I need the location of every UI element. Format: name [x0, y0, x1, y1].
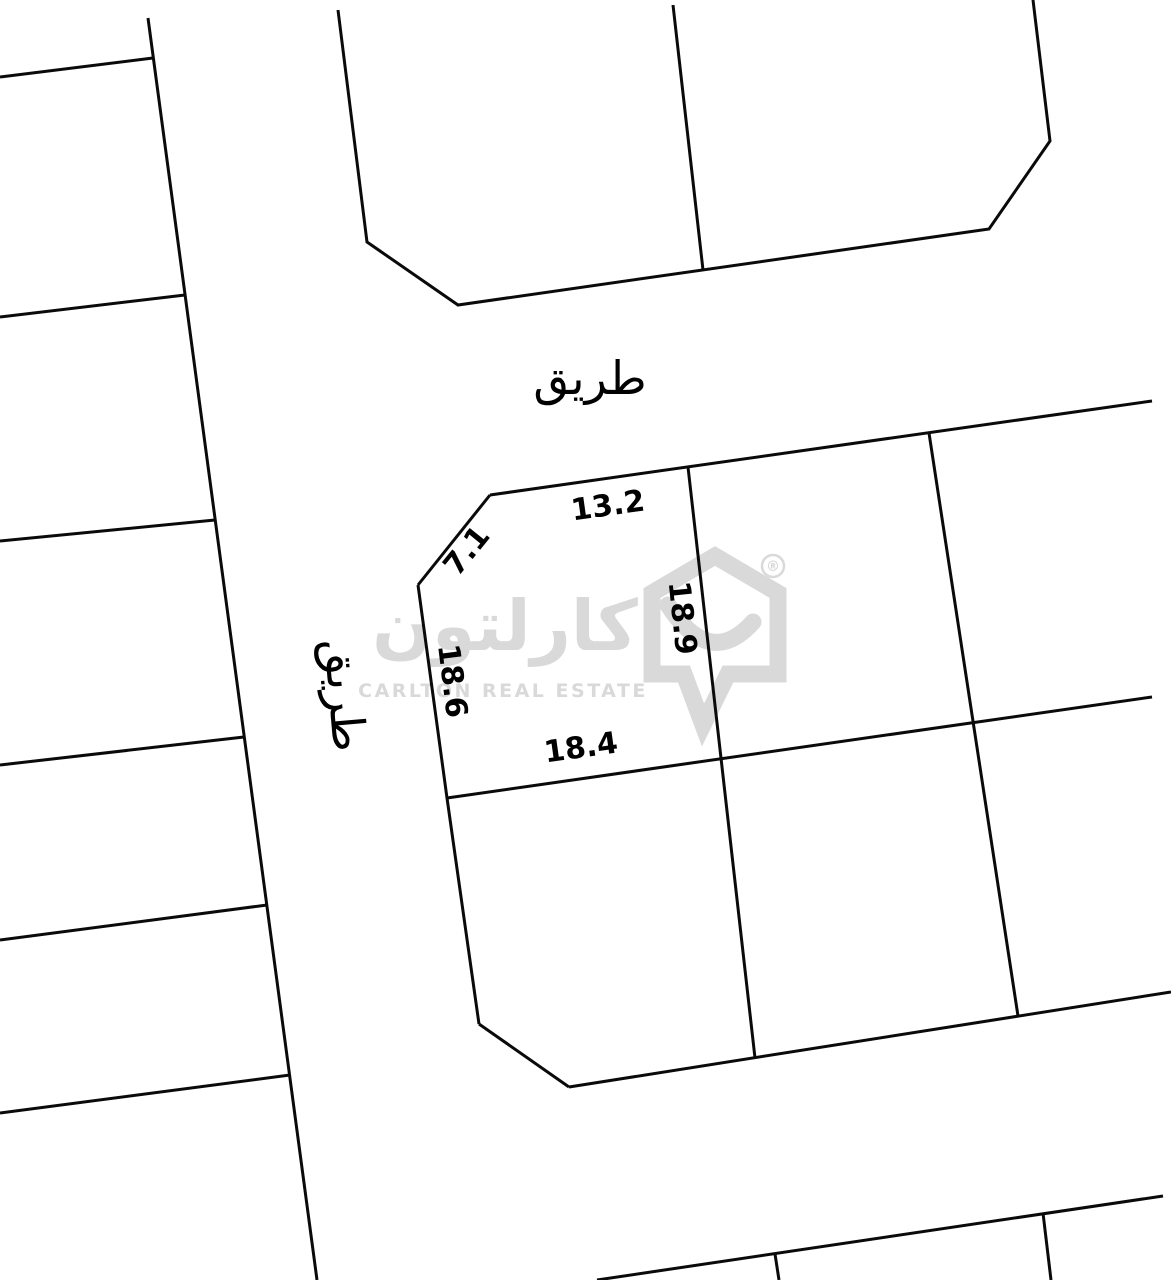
dimension-bottom: 18.4: [542, 726, 620, 771]
middle-block-south-boundary: [569, 992, 1171, 1087]
west-plot-division-2: [0, 295, 185, 317]
watermark-arabic-wordmark: كارلتون: [372, 585, 638, 667]
west-plot-division-1: [0, 58, 153, 77]
dimension-right: 18.9: [661, 579, 704, 656]
north-plot-division: [673, 5, 703, 270]
west-plot-division-3: [0, 520, 215, 541]
bottom-block-north-boundary: [597, 1196, 1163, 1280]
bottom-plot-division-2: [1043, 1213, 1051, 1280]
west-plot-division-4: [0, 737, 244, 765]
dimension-chamfer: 7.1: [437, 519, 498, 582]
dimension-top: 13.2: [569, 484, 647, 529]
map-labels: طريق طريق 13.2 7.1 18.6 18.9 18.4: [312, 351, 703, 770]
top-road-label: طريق: [533, 351, 646, 406]
west-plot-division-5: [0, 905, 267, 940]
registered-trademark-icon: ®: [762, 555, 784, 577]
west-plot-division-6: [0, 1075, 290, 1113]
watermark-english-wordmark: CARLTON REAL ESTATE: [358, 680, 648, 702]
middle-row-north-boundary: [490, 401, 1152, 495]
plot-map-canvas: كارلتون ® CARLTON REAL ESTATE: [0, 0, 1171, 1280]
north-plot-outline: [338, 0, 1050, 305]
lower-plot-chamfer-edge: [479, 1024, 569, 1087]
west-road-label: طريق: [312, 636, 377, 754]
site-plan-map: كارلتون ® CARLTON REAL ESTATE: [0, 0, 1171, 1280]
registered-letter: ®: [766, 559, 780, 575]
east-plot-division: [929, 433, 1018, 1016]
bottom-plot-division-1: [775, 1254, 779, 1280]
